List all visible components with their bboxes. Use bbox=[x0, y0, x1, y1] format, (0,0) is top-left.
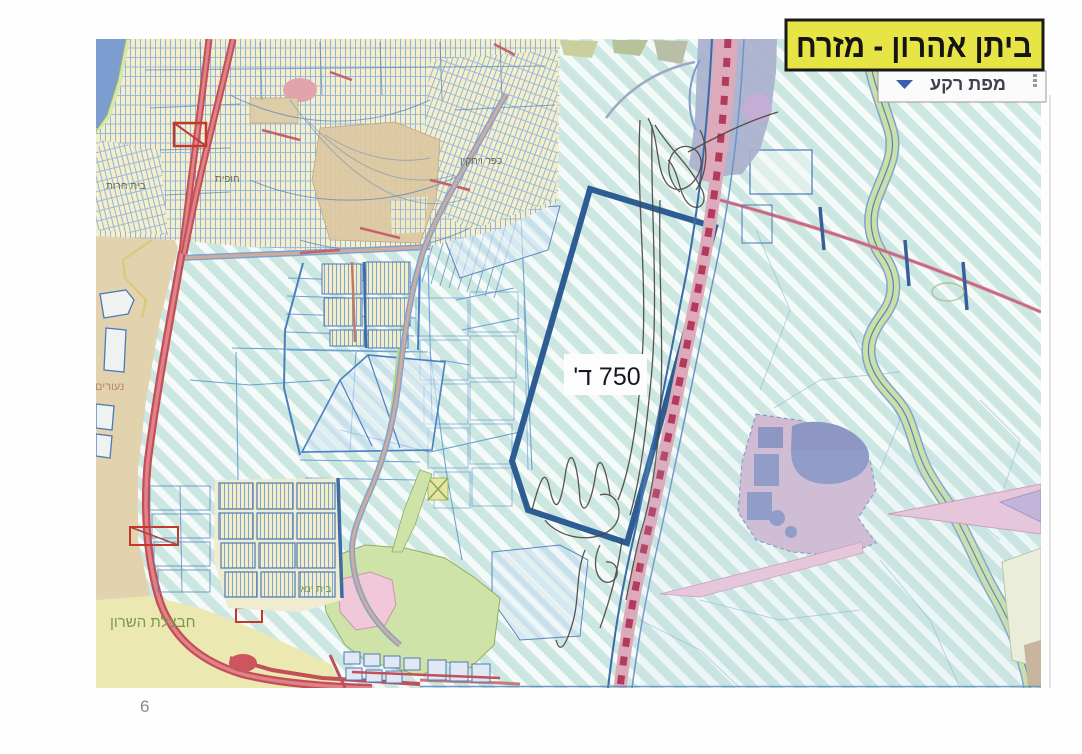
svg-text:חופית: חופית bbox=[215, 174, 240, 185]
svg-text:בית ינאי: בית ינאי bbox=[298, 584, 331, 595]
svg-text:מפת רקע: מפת רקע bbox=[930, 74, 1006, 94]
svg-text:ביתן אהרון - מזרח: ביתן אהרון - מזרח bbox=[796, 27, 1032, 64]
svg-text:נעורים: נעורים bbox=[95, 381, 124, 393]
svg-text:חבצלת השרון: חבצלת השרון bbox=[110, 614, 195, 631]
svg-text:6: 6 bbox=[140, 697, 149, 716]
svg-text:750 ד': 750 ד' bbox=[573, 363, 640, 391]
svg-text:כפר ויתקין: כפר ויתקין bbox=[460, 156, 502, 167]
svg-text:בית חרות: בית חרות bbox=[106, 181, 146, 192]
